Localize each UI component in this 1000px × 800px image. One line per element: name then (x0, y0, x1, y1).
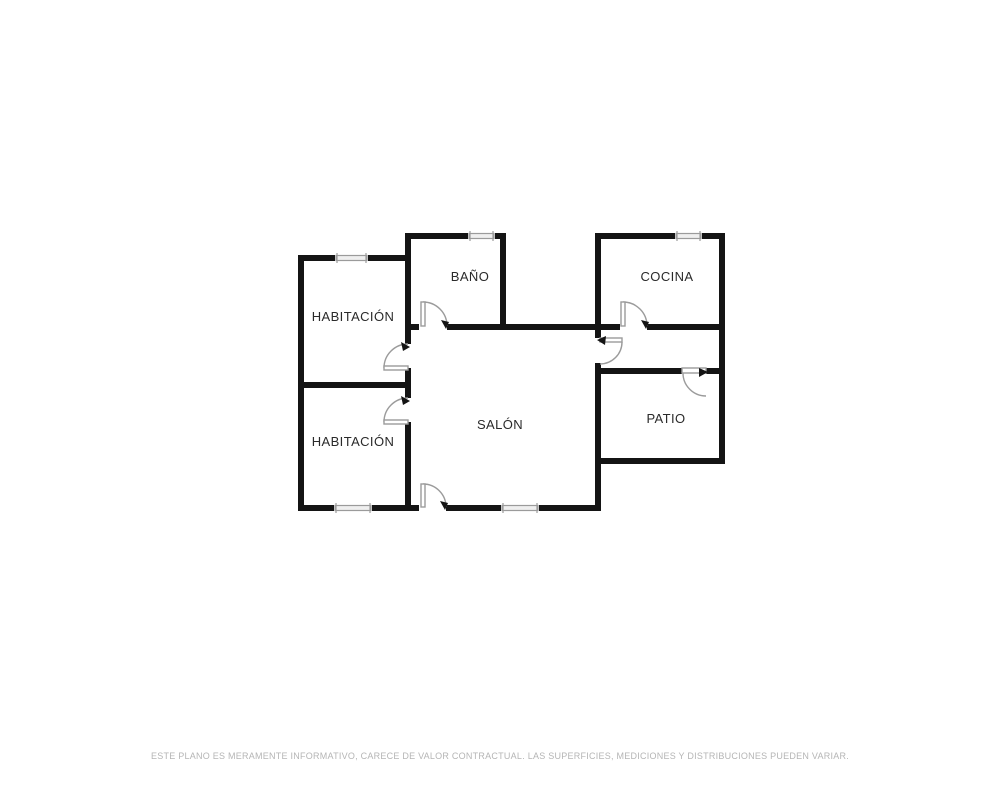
doors (384, 302, 708, 510)
window-icon-bano (468, 231, 495, 241)
room-label-habitacion-2: HABITACIÓN (312, 434, 395, 449)
room-label-patio: PATIO (646, 411, 685, 426)
window-icon-habitacion-2 (334, 503, 372, 513)
disclaimer-text: ESTE PLANO ES MERAMENTE INFORMATIVO, CAR… (0, 751, 1000, 761)
floor-plan-diagram: HABITACIÓN BAÑO COCINA SALÓN HABITACIÓN … (0, 0, 1000, 800)
window-icon-salon (501, 503, 539, 513)
room-label-bano: BAÑO (451, 269, 489, 284)
window-icon-cocina (675, 231, 702, 241)
floor-plan-page: HABITACIÓN BAÑO COCINA SALÓN HABITACIÓN … (0, 0, 1000, 800)
window-icon-habitacion-1 (335, 253, 368, 263)
door-icon-patio (682, 368, 708, 396)
room-label-salon: SALÓN (477, 417, 523, 432)
room-label-habitacion-1: HABITACIÓN (312, 309, 395, 324)
room-label-cocina: COCINA (641, 269, 694, 284)
